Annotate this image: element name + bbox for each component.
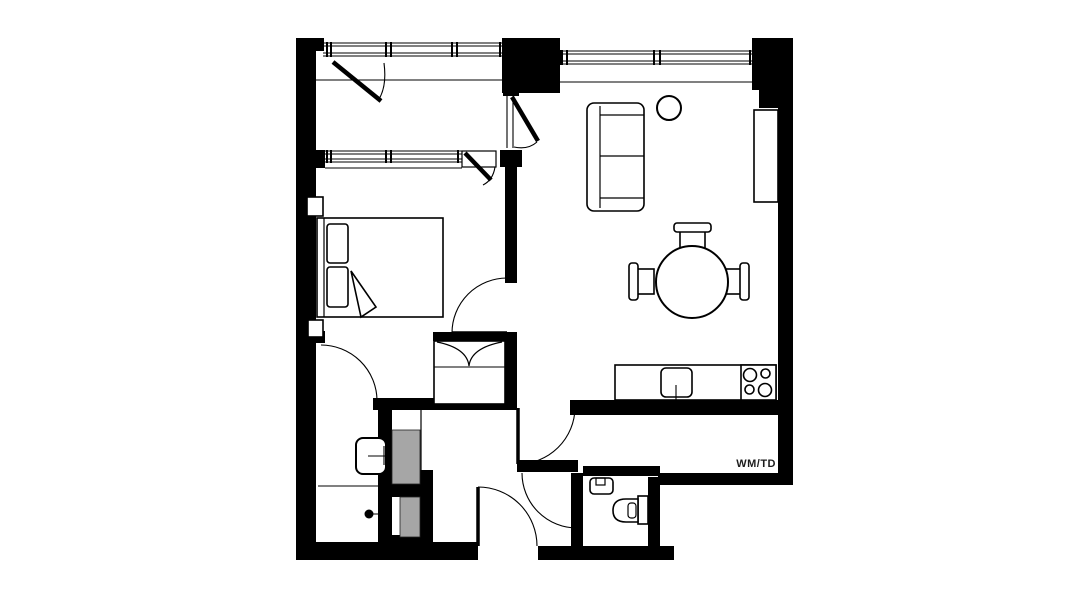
living-room-window [560, 50, 752, 82]
wall-corridor-bottom [658, 473, 793, 485]
floor-plan: WM/TD [0, 0, 1092, 614]
washbasin [356, 438, 392, 474]
toilet-cistern [638, 496, 648, 524]
plant [657, 96, 681, 120]
kitchen-counter [615, 365, 776, 401]
wall-hall-center [517, 460, 578, 472]
wardrobe [434, 341, 505, 404]
pillow [327, 224, 348, 263]
wall-bottom-left [296, 542, 478, 560]
sofa [587, 103, 644, 211]
wc-sink [590, 478, 613, 494]
entry-door [478, 487, 537, 546]
wall-glazing-stub-top [503, 88, 519, 96]
shaft [400, 497, 420, 537]
cooktop [741, 365, 776, 400]
bedside-pier [308, 320, 323, 337]
wall-top-right-corner [752, 38, 793, 90]
dining-chair-top [674, 223, 711, 248]
bedroom-window-opening [462, 151, 496, 185]
wall-wc-top [583, 466, 660, 476]
floor-plan-svg: WM/TD [0, 0, 1092, 614]
balcony-partition-glazing [507, 96, 538, 148]
wall-bedroom-living-upper [505, 152, 517, 283]
burner [744, 369, 757, 382]
bedroom-door [452, 278, 507, 333]
burner [745, 385, 754, 394]
pillow [327, 267, 348, 307]
bedside-pier [307, 197, 323, 216]
living-room-door [518, 408, 575, 464]
wc-door [522, 473, 577, 528]
wall-shaft-left [378, 410, 392, 543]
dining-table [656, 246, 728, 318]
burner [759, 384, 772, 397]
wall-top-left-notch [296, 38, 324, 51]
utility-label: WM/TD [736, 458, 776, 470]
toilet-bowl [613, 499, 638, 522]
dining-set [629, 223, 749, 318]
wc [590, 478, 648, 524]
service-shafts [392, 410, 421, 537]
sideboard [754, 110, 778, 202]
balcony-railing [316, 42, 502, 80]
wall-window-stub-left [316, 150, 325, 168]
balcony-partition-door-leaf [512, 97, 538, 141]
balcony-door-leaf [333, 62, 381, 101]
dining-chair-left [629, 263, 654, 300]
wall-wc-right [648, 477, 660, 553]
double-bed [317, 218, 443, 317]
shaft [392, 430, 420, 484]
bathroom-door [321, 345, 377, 400]
bedroom-window [325, 150, 496, 185]
wall-right [778, 92, 793, 485]
wall-bedroom-living-lower [505, 333, 517, 410]
wall-entry-nook [420, 470, 433, 544]
wall-bottom-right [538, 546, 674, 560]
wall-top-column [502, 38, 560, 93]
toilet [613, 496, 648, 524]
wall-wc-left [571, 473, 583, 547]
kitchen-sink [661, 368, 692, 401]
balcony-door [333, 62, 385, 101]
burner [761, 369, 770, 378]
wall-left [296, 38, 316, 560]
wall-kitchen [570, 400, 780, 415]
wall-glazing-stub-bottom [500, 150, 522, 167]
